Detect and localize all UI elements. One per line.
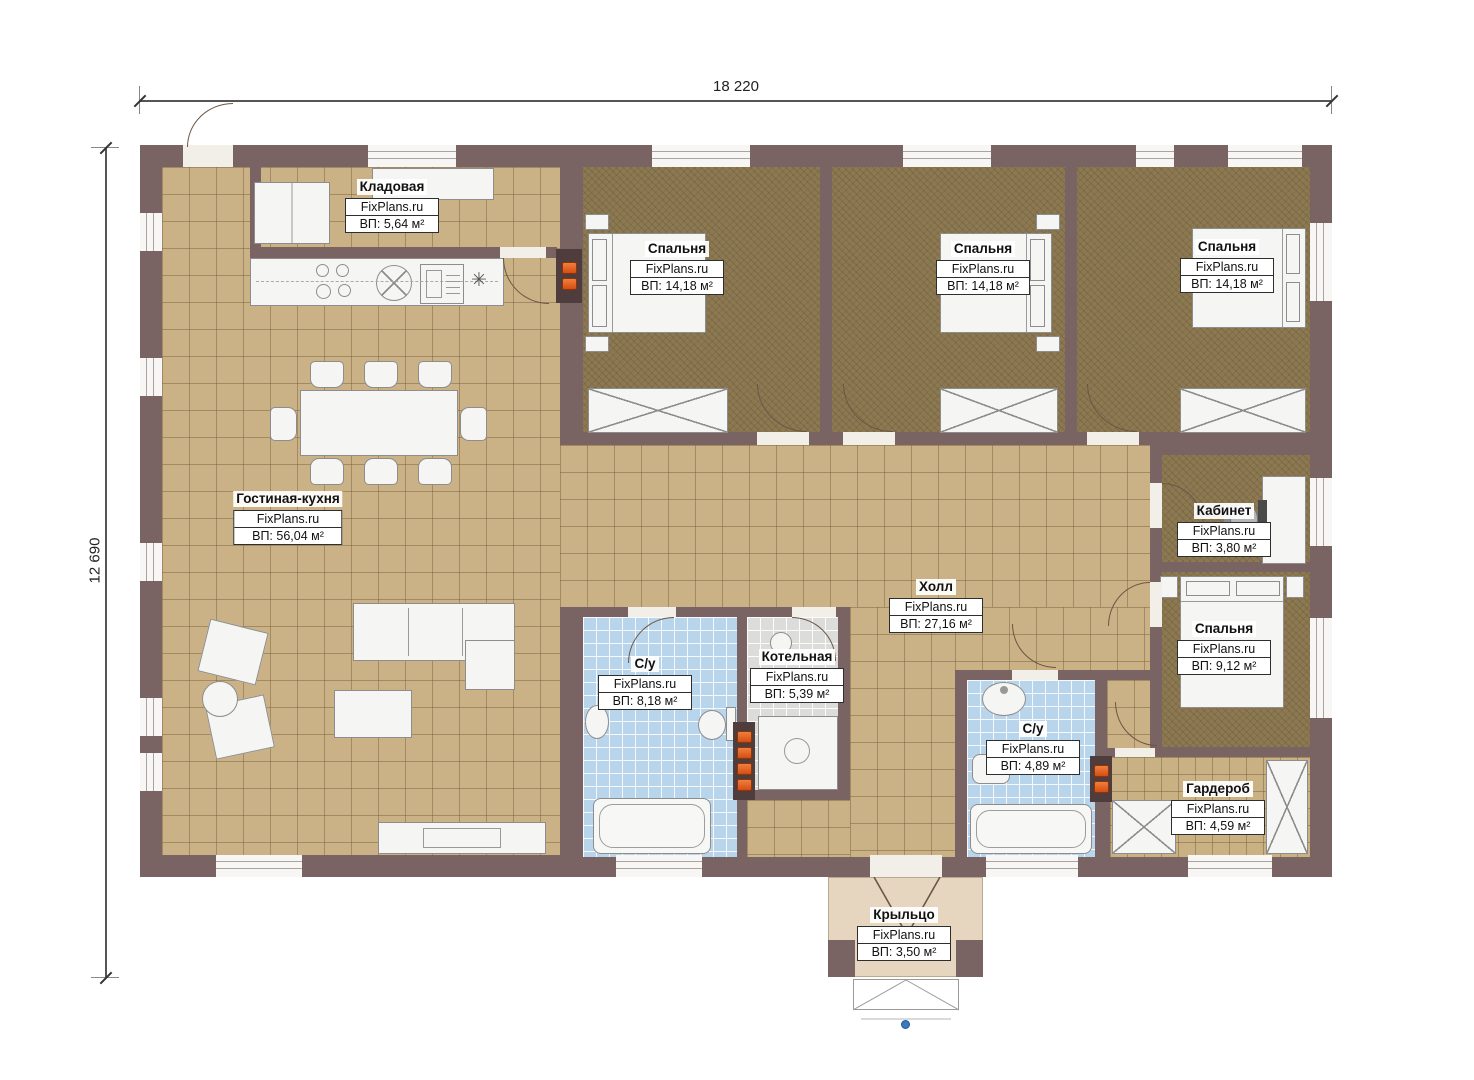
entry-door-opening (183, 145, 233, 167)
room-label-bedroom-2: Спальня FixPlans.ruВП: 14,18 м² (936, 240, 1030, 295)
window-opening (1310, 223, 1332, 301)
window-opening (1310, 478, 1332, 546)
chair (364, 361, 398, 388)
brand-text: FixPlans.ru (1172, 801, 1264, 817)
brand-text: FixPlans.ru (751, 669, 843, 685)
nightstand (585, 336, 609, 352)
room-area: ВП: 3,50 м² (858, 943, 950, 960)
bed-seam (1181, 601, 1283, 602)
room-area: ВП: 27,16 м² (890, 615, 982, 632)
brand-text: FixPlans.ru (1181, 259, 1273, 275)
chair (460, 407, 487, 441)
floor-hall-main (560, 445, 1150, 607)
room-label-wardrobe: Гардероб FixPlans.ruВП: 4,59 м² (1171, 780, 1265, 835)
window-opening (1310, 618, 1332, 718)
door-opening (1150, 483, 1162, 528)
nightstand (1036, 336, 1060, 352)
dishwasher-detail (446, 270, 460, 298)
dimension-width-label: 18 220 (636, 78, 836, 95)
window-opening (1188, 855, 1272, 877)
room-label-boiler: Котельная FixPlans.ruВП: 5,39 м² (750, 648, 844, 703)
room-area: ВП: 4,89 м² (987, 757, 1079, 774)
floor-hall-corridor (850, 607, 955, 857)
room-name: Спальня (645, 241, 709, 257)
room-area: ВП: 5,64 м² (346, 215, 438, 232)
pillow (1236, 581, 1280, 596)
room-area: ВП: 14,18 м² (937, 277, 1029, 294)
window-opening (903, 145, 991, 167)
wardrobe-cabinet (588, 388, 728, 433)
radiator-unit (733, 722, 755, 800)
brand-text: FixPlans.ru (937, 261, 1029, 277)
stove-burner-icon (338, 284, 351, 297)
room-area: ВП: 4,59 м² (1172, 817, 1264, 834)
porch-pillar (828, 940, 855, 977)
window-opening (216, 855, 302, 877)
room-name: Спальня (951, 241, 1015, 257)
pillow (1286, 234, 1300, 274)
window-opening (652, 145, 750, 167)
brand-text: FixPlans.ru (234, 511, 341, 527)
cooktop-star-icon: ✳ (466, 271, 492, 293)
brand-text: FixPlans.ru (890, 599, 982, 615)
window-opening (1136, 145, 1174, 167)
door-opening (792, 607, 836, 617)
brand-text: FixPlans.ru (599, 676, 691, 692)
pillow (1030, 239, 1045, 281)
door-opening (1087, 432, 1139, 445)
bathtub (593, 798, 711, 854)
room-name: Кладовая (357, 179, 428, 195)
wardrobe-cabinet (940, 388, 1058, 433)
room-area: ВП: 8,18 м² (599, 692, 691, 709)
room-label-bedroom-3: Спальня FixPlans.ruВП: 14,18 м² (1180, 238, 1274, 293)
porch-pillar (956, 940, 983, 977)
window-opening (986, 855, 1078, 877)
coffee-table (334, 690, 412, 738)
pillow (1030, 285, 1045, 327)
wardrobe-cabinet (1180, 388, 1306, 433)
entrance-door-opening (870, 855, 942, 877)
nightstand (1160, 576, 1178, 598)
bed-seam (612, 234, 613, 332)
brand-text: FixPlans.ru (858, 927, 950, 943)
room-name: Гостиная-кухня (233, 491, 342, 507)
room-name: Спальня (1192, 621, 1256, 637)
chair (418, 458, 452, 485)
room-label-bedroom-4: Спальня FixPlans.ruВП: 9,12 м² (1177, 620, 1271, 675)
chair (310, 361, 344, 388)
counter-centerline (256, 281, 498, 282)
room-name: Крыльцо (870, 907, 937, 923)
window-opening (140, 213, 162, 251)
sofa-seam (462, 608, 463, 656)
room-area: ВП: 14,18 м² (631, 277, 723, 294)
room-name: Холл (916, 579, 956, 595)
door-arc (187, 103, 233, 147)
room-name: С/у (631, 656, 658, 672)
nightstand (1286, 576, 1304, 598)
porch-steps (853, 979, 959, 1021)
window-opening (140, 753, 162, 791)
toilet (698, 710, 726, 740)
wardrobe-shelf (1266, 760, 1308, 854)
room-label-bedroom-1: Спальня FixPlans.ruВП: 14,18 м² (630, 240, 724, 295)
storage-cabinet (254, 182, 330, 244)
nightstand (585, 214, 609, 230)
room-label-bathroom-2: С/у FixPlans.ruВП: 4,89 м² (986, 720, 1080, 775)
room-name: Котельная (759, 649, 836, 665)
chair (310, 458, 344, 485)
boiler-detail (784, 738, 810, 764)
reference-marker-dot (901, 1020, 910, 1029)
radiator-unit (556, 249, 582, 303)
brand-text: FixPlans.ru (1178, 641, 1270, 657)
sofa-seam (408, 608, 409, 656)
room-label-porch: Крыльцо FixPlans.ruВП: 3,50 м² (857, 906, 951, 961)
chair (364, 458, 398, 485)
room-label-bathroom-1: С/у FixPlans.ruВП: 8,18 м² (598, 655, 692, 710)
door-opening (628, 607, 676, 617)
dimension-height-label: 12 690 (87, 501, 104, 621)
chair (418, 361, 452, 388)
washbasin (585, 705, 609, 739)
window-opening (140, 698, 162, 736)
window-opening (1228, 145, 1302, 167)
pillow (1286, 282, 1300, 322)
side-table (202, 681, 238, 717)
stove-burner-icon (336, 264, 349, 277)
brand-text: FixPlans.ru (346, 199, 438, 215)
room-area: ВП: 3,80 м² (1178, 539, 1270, 556)
window-opening (140, 358, 162, 396)
dining-table (300, 390, 458, 456)
floor-hall-south (747, 800, 850, 857)
sofa-chaise (465, 640, 515, 690)
pillow (1186, 581, 1230, 596)
pillow (592, 285, 607, 327)
brand-text: FixPlans.ru (631, 261, 723, 277)
faucet-dot (1000, 686, 1008, 694)
door-opening (500, 247, 546, 258)
brand-text: FixPlans.ru (1178, 523, 1270, 539)
bed-seam (1282, 229, 1283, 327)
door-opening (1012, 670, 1058, 680)
bathtub (970, 804, 1092, 854)
tv-stand-detail (423, 828, 501, 848)
dishwasher-detail (426, 270, 442, 298)
room-label-hall: Холл FixPlans.ruВП: 27,16 м² (889, 578, 983, 633)
room-name: Кабинет (1194, 503, 1255, 519)
window-opening (368, 145, 456, 167)
kitchen-sink-icon (376, 265, 412, 301)
room-name: С/у (1019, 721, 1046, 737)
room-label-living-kitchen: Гостиная-кухня FixPlans.ruВП: 56,04 м² (233, 490, 342, 545)
stove-burner-icon (316, 284, 331, 299)
door-opening (1115, 748, 1155, 757)
door-opening (1150, 582, 1162, 627)
pillow (592, 239, 607, 281)
floor-plan: ✳ (0, 0, 1474, 1080)
wardrobe-shelf (1112, 800, 1176, 854)
room-label-storage: Кладовая FixPlans.ruВП: 5,64 м² (345, 178, 439, 233)
room-area: ВП: 56,04 м² (234, 527, 341, 544)
room-name: Спальня (1195, 239, 1259, 255)
room-area: ВП: 9,12 м² (1178, 657, 1270, 674)
radiator-unit (1090, 756, 1112, 802)
door-opening (843, 432, 895, 445)
room-name: Гардероб (1183, 781, 1253, 797)
chair (270, 407, 297, 441)
stove-burner-icon (316, 264, 329, 277)
brand-text: FixPlans.ru (987, 741, 1079, 757)
door-opening (757, 432, 809, 445)
dimension-line-left (105, 148, 107, 978)
room-area: ВП: 14,18 м² (1181, 275, 1273, 292)
window-opening (616, 855, 702, 877)
window-opening (140, 543, 162, 581)
nightstand (1036, 214, 1060, 230)
room-label-office: Кабинет FixPlans.ruВП: 3,80 м² (1177, 502, 1271, 557)
room-area: ВП: 5,39 м² (751, 685, 843, 702)
dimension-line-top (140, 100, 1332, 102)
